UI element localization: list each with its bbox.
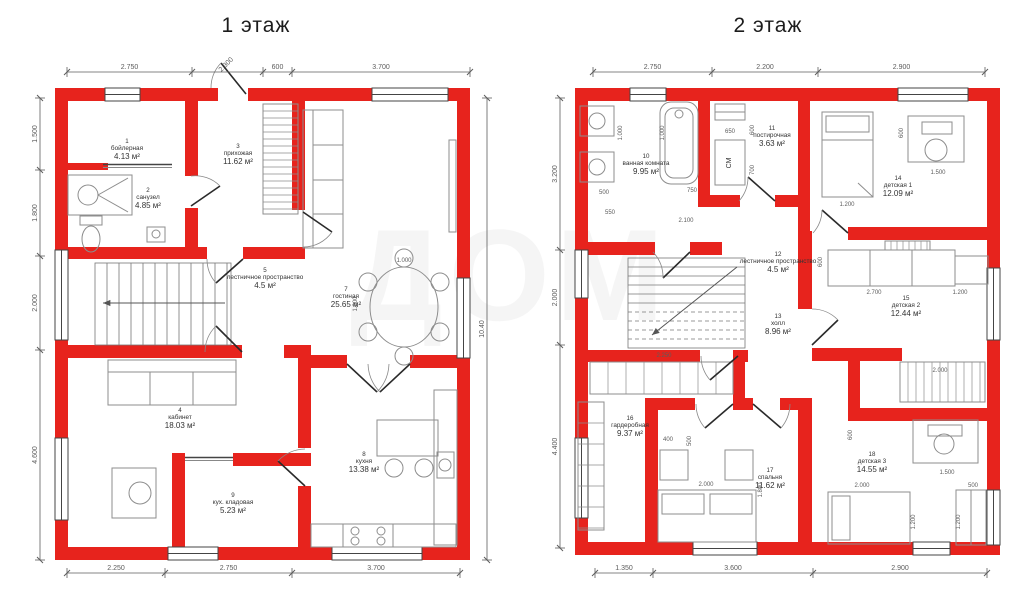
- furniture: [415, 459, 433, 477]
- furniture: [112, 468, 156, 518]
- dim-value: 3.700: [372, 64, 390, 71]
- interior-dim-value: 600: [848, 429, 854, 440]
- wall: [698, 195, 740, 207]
- dim-value: 3.600: [724, 565, 742, 572]
- wall: [233, 453, 311, 466]
- dim-value: 2.900: [891, 565, 909, 572]
- wall: [733, 350, 745, 398]
- door-swing-arc: [191, 176, 220, 186]
- wall: [298, 358, 311, 448]
- shelving-hatch: [885, 241, 930, 250]
- furniture: [359, 273, 377, 291]
- wall: [410, 355, 457, 368]
- furniture: [858, 183, 873, 197]
- interior-dim-value: 2.700: [866, 290, 882, 296]
- furniture: [377, 527, 385, 535]
- interior-dim-value: 2.250: [656, 353, 672, 359]
- walls-layer-floor2: [575, 88, 1000, 555]
- wall: [690, 242, 722, 255]
- appliance-label: СМ: [726, 157, 733, 168]
- furniture: [431, 273, 449, 291]
- furniture: [98, 195, 128, 212]
- furniture: [710, 494, 752, 514]
- door-leaf: [303, 212, 332, 232]
- wall: [775, 195, 798, 207]
- room-label: 14детская 112.09 м²: [883, 175, 914, 198]
- furniture: [725, 450, 753, 480]
- door-leaf: [705, 404, 733, 428]
- door-leaf: [347, 364, 377, 392]
- furniture: [377, 420, 438, 456]
- dim-value: 3.200: [552, 165, 559, 183]
- dim-value: 2.250: [107, 565, 125, 572]
- interior-dim-value: 400: [663, 437, 674, 443]
- room-label: 4кабинет18.03 м²: [165, 407, 196, 430]
- furniture: [359, 323, 377, 341]
- dim-value: 2.000: [32, 294, 39, 312]
- interior-dim-value: 700: [750, 164, 756, 175]
- furniture: [822, 112, 873, 197]
- room-label: 11постирочная3.63 м²: [753, 125, 791, 148]
- room-label: 15детская 212.44 м²: [891, 295, 922, 318]
- furniture: [439, 459, 451, 471]
- interior-dim-value: 1.200: [911, 514, 917, 530]
- door-swing-arc: [303, 232, 332, 247]
- furniture: [675, 110, 683, 118]
- door-leaf: [748, 177, 775, 201]
- dim-value: 1.800: [32, 204, 39, 222]
- doors-layer-floor2: [653, 177, 848, 428]
- stairs-layer-floor2: [628, 258, 745, 348]
- furniture: [351, 527, 359, 535]
- floor-plans-drawing: 1бойлерная4.13 м²2санузел4.85 м²3прихожа…: [0, 0, 1024, 589]
- interior-dim-value: 1.000: [396, 258, 412, 264]
- furniture: [343, 524, 393, 547]
- wall: [848, 227, 1000, 240]
- wall: [68, 163, 108, 170]
- door-swing-arc: [701, 356, 710, 380]
- wall: [55, 345, 242, 358]
- interior-dim-value: 650: [725, 129, 736, 135]
- interior-dim-value: 500: [687, 435, 693, 446]
- interior-dim-value: 500: [599, 190, 610, 196]
- wall: [185, 88, 198, 176]
- interior-dim-value: 1.200: [952, 290, 968, 296]
- furniture: [351, 537, 359, 545]
- furniture: [828, 492, 910, 544]
- wall: [733, 398, 753, 410]
- furniture: [913, 420, 978, 463]
- wall: [575, 350, 700, 362]
- room-label: 1бойлерная4.13 м²: [111, 138, 144, 161]
- interior-dim-value: 1.200: [839, 202, 855, 208]
- door-leaf: [822, 210, 848, 233]
- arrow-head: [652, 328, 660, 335]
- wall: [243, 247, 305, 259]
- furniture: [660, 450, 688, 480]
- interior-dim-value: 600: [750, 124, 756, 135]
- furniture: [129, 482, 151, 504]
- interior-dim-value: 1.000: [618, 125, 624, 141]
- dim-value: 2.750: [121, 64, 139, 71]
- dimensions-layer-floor1: 2.7502.3006003.7002.2502.7503.7001.5001.…: [32, 56, 492, 578]
- wall: [798, 88, 810, 231]
- door-swing-arc: [368, 364, 380, 392]
- dim-value: 1.350: [615, 565, 633, 572]
- furniture: [370, 267, 438, 347]
- interior-dim-value: 1.500: [939, 470, 955, 476]
- door-leaf: [812, 320, 838, 345]
- dim-value: 10.40: [479, 320, 486, 338]
- dim-value: 4.600: [32, 446, 39, 464]
- interior-dim-value: 1.000: [660, 125, 666, 141]
- interior-dim-value: 600: [899, 127, 905, 138]
- furniture: [922, 122, 952, 134]
- dim-value: 2.000: [552, 289, 559, 307]
- interior-dim-value: 600: [818, 256, 824, 267]
- wall: [55, 247, 207, 259]
- dim-value: 1.500: [32, 125, 39, 143]
- furniture: [828, 250, 955, 286]
- furniture: [147, 227, 165, 242]
- furniture: [377, 537, 385, 545]
- dim-value: 4.400: [552, 438, 559, 456]
- room-label: 9кух. кладовая5.23 м²: [213, 492, 254, 515]
- interior-dim-value: 1.800: [758, 482, 764, 498]
- wall: [848, 352, 860, 408]
- furniture: [955, 256, 988, 284]
- furniture: [925, 139, 947, 161]
- furniture: [589, 159, 605, 175]
- room-label: 10ванная комната9.95 м²: [623, 153, 670, 176]
- room-label: 2санузел4.85 м²: [135, 187, 161, 210]
- room-label: 8кухня13.38 м²: [349, 451, 380, 474]
- wall: [698, 88, 710, 198]
- dim-value: 2.200: [756, 64, 774, 71]
- door-swing-arc: [739, 177, 748, 201]
- interior-dim-value: 2.000: [932, 368, 948, 374]
- door-leaf: [753, 404, 781, 428]
- furniture: [385, 459, 403, 477]
- room-label: 3прихожая11.62 м²: [223, 143, 253, 166]
- floor-plan-page: { "colors": { "wall": "#e7231d", "line":…: [0, 0, 1024, 589]
- room-label: 16гардеробная9.37 м²: [611, 415, 649, 438]
- furniture: [826, 116, 869, 132]
- interior-dim-value: 500: [968, 483, 979, 489]
- wall: [284, 345, 311, 358]
- room-label: 5лестничное пространство4.5 м²: [227, 267, 304, 290]
- furniture: [303, 110, 343, 248]
- interior-dim-value: 2.100: [678, 218, 694, 224]
- furniture: [431, 323, 449, 341]
- furniture: [589, 113, 605, 129]
- furniture: [152, 230, 160, 238]
- door-swing-arc: [812, 309, 838, 320]
- furniture: [832, 496, 850, 540]
- interior-dim-value: 2.000: [854, 483, 870, 489]
- door-leaf: [191, 186, 220, 206]
- door-swing-arc: [377, 364, 389, 392]
- furniture: [80, 216, 102, 225]
- interior-dim-value: 550: [605, 210, 616, 216]
- door-swing-arc: [653, 252, 663, 278]
- furniture: [78, 185, 98, 205]
- dim-value: 2.900: [893, 64, 911, 71]
- room-label: 18детская 314.55 м²: [857, 451, 888, 474]
- wall: [298, 486, 311, 560]
- wall: [798, 231, 812, 309]
- furniture: [658, 490, 756, 542]
- wall: [172, 453, 185, 560]
- dim-value: 3.700: [367, 565, 385, 572]
- wall: [311, 355, 347, 368]
- interior-dim-value: 1.800: [353, 296, 359, 312]
- room-label: 13холл8.96 м²: [765, 313, 791, 336]
- wall: [798, 398, 812, 555]
- furniture: [98, 178, 128, 195]
- furniture: [108, 360, 236, 405]
- dim-value: 2.750: [220, 565, 238, 572]
- interior-dim-value: 1.500: [930, 170, 946, 176]
- interior-dim-value: 2.000: [698, 482, 714, 488]
- dim-value: 600: [272, 64, 284, 71]
- door-swing-arc: [813, 210, 822, 233]
- interior-dim-value: 1.200: [956, 514, 962, 530]
- wall: [848, 408, 1000, 421]
- furniture: [449, 140, 456, 232]
- interior-dim-value: 750: [687, 188, 698, 194]
- dim-value: 2.750: [644, 64, 662, 71]
- furniture: [662, 494, 704, 514]
- door-leaf: [663, 252, 690, 278]
- door-swing-arc: [696, 404, 705, 428]
- furniture: [934, 434, 954, 454]
- windows-layer-floor2: [575, 88, 1000, 555]
- door-leaf: [380, 364, 410, 392]
